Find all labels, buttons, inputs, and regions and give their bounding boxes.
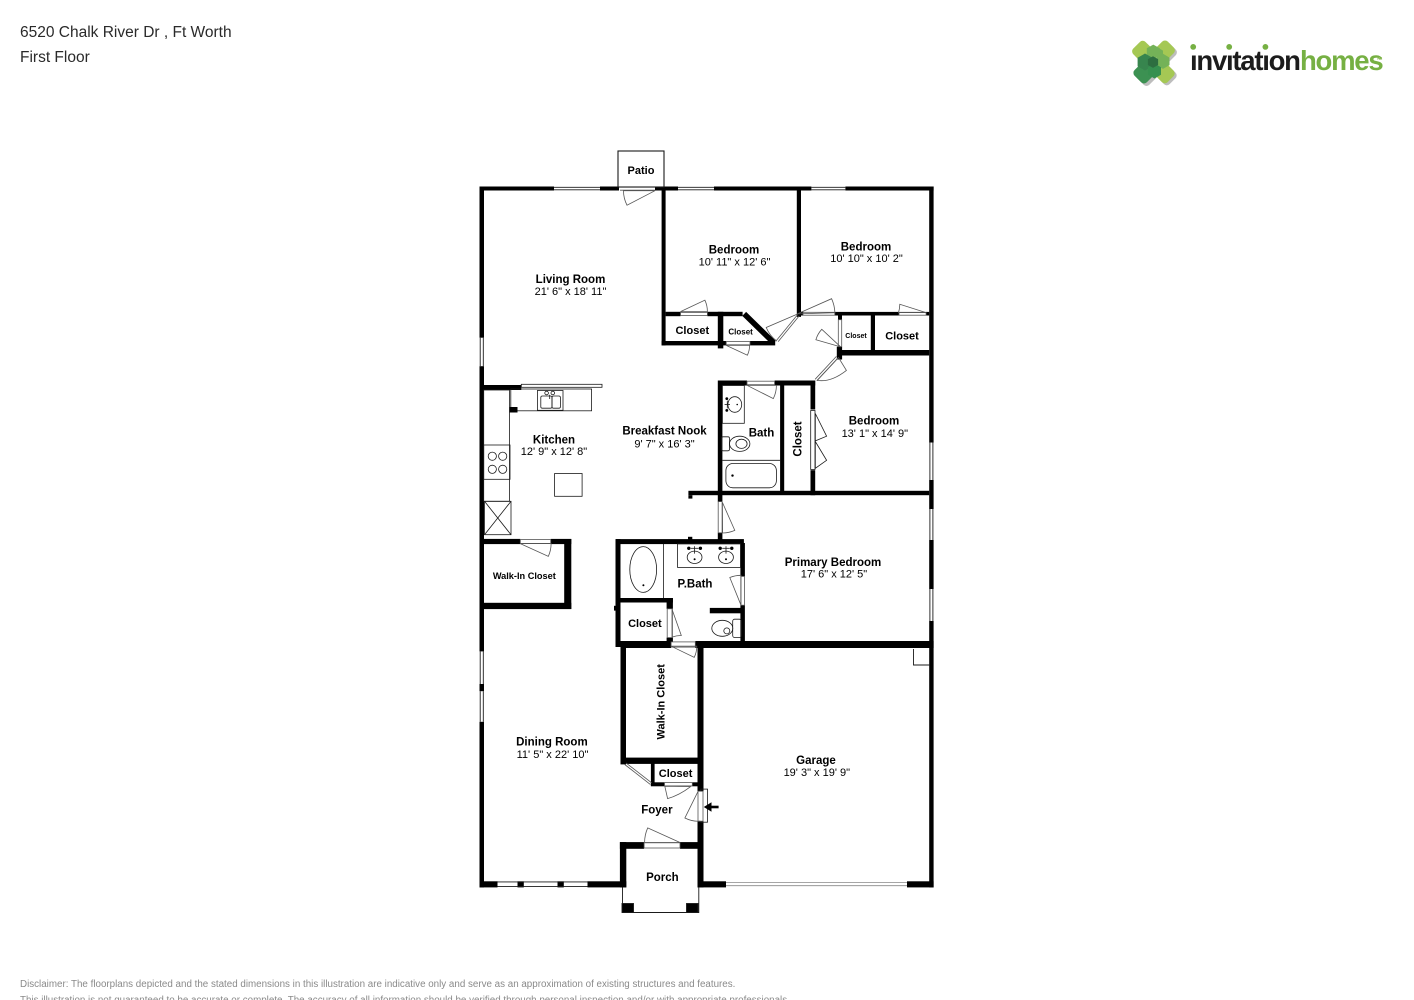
svg-text:Patio: Patio [628,165,655,177]
svg-text:11' 5" x 22' 10": 11' 5" x 22' 10" [517,749,589,761]
svg-text:Disclaimer: The floorplans dep: Disclaimer: The floorplans depicted and … [20,979,735,990]
svg-text:Closet: Closet [628,618,662,630]
svg-text:Walk-In Closet: Walk-In Closet [493,571,556,581]
svg-text:Bath: Bath [749,428,775,440]
svg-text:Living Room: Living Room [536,274,606,286]
svg-text:homes: homes [1300,45,1383,76]
svg-text:Closet: Closet [845,333,867,340]
svg-text:6520 Chalk River Dr , Ft Worth: 6520 Chalk River Dr , Ft Worth [20,24,232,41]
svg-text:Bedroom: Bedroom [709,245,759,257]
svg-text:P.Bath: P.Bath [678,579,713,591]
svg-text:9' 7" x 16' 3": 9' 7" x 16' 3" [634,439,694,451]
svg-text:12' 9" x 12' 8": 12' 9" x 12' 8" [521,446,588,458]
svg-text:Bedroom: Bedroom [841,242,891,254]
svg-text:Walk-In Closet: Walk-In Closet [656,664,668,740]
svg-text:19' 3" x 19' 9": 19' 3" x 19' 9" [784,767,851,779]
svg-text:17' 6" x 12' 5": 17' 6" x 12' 5" [801,569,868,581]
svg-text:Closet: Closet [885,331,919,343]
svg-text:Breakfast Nook: Breakfast Nook [622,426,707,438]
svg-text:Garage: Garage [796,755,836,767]
svg-text:Primary Bedroom: Primary Bedroom [785,557,882,569]
svg-text:Kitchen: Kitchen [533,435,575,447]
svg-text:Closet: Closet [659,768,693,780]
svg-text:ınvıtatıon: ınvıtatıon [1190,45,1300,76]
svg-text:Bedroom: Bedroom [849,416,899,428]
svg-text:21' 6" x 18' 11": 21' 6" x 18' 11" [535,286,607,298]
svg-text:10' 10" x 10' 2": 10' 10" x 10' 2" [830,253,903,265]
svg-text:Foyer: Foyer [641,805,673,817]
svg-text:Closet: Closet [728,328,753,337]
svg-text:™: ™ [1376,55,1384,64]
svg-text:Closet: Closet [793,421,805,456]
svg-text:Dining Room: Dining Room [516,736,588,748]
svg-text:This illustration is not guara: This illustration is not guaranteed to b… [20,995,790,1000]
svg-text:13' 1" x 14' 9": 13' 1" x 14' 9" [842,428,909,440]
svg-text:Closet: Closet [675,325,709,337]
svg-text:10' 11" x 12' 6": 10' 11" x 12' 6" [699,257,771,269]
svg-text:Porch: Porch [646,872,679,884]
svg-text:First Floor: First Floor [20,49,90,66]
